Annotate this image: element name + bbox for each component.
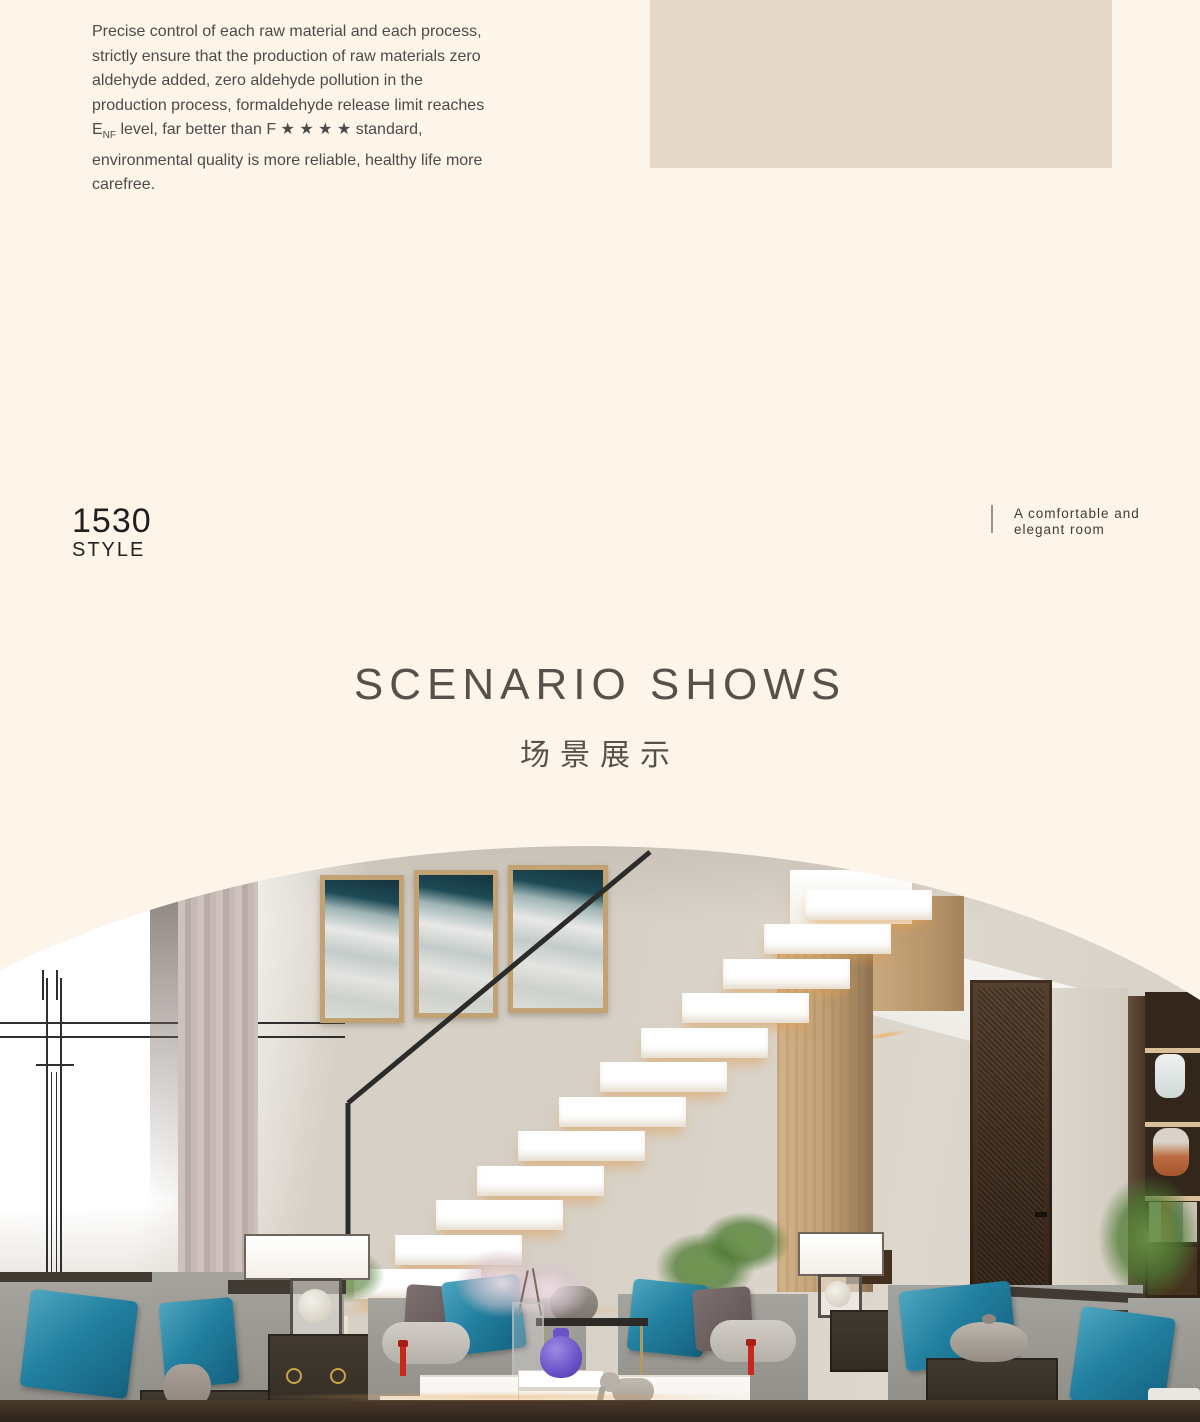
table-lamp-left-shade [244, 1234, 370, 1280]
fern-plant-center [700, 1212, 790, 1272]
intro-text-end: level, far better than F ★ ★ ★ ★ standar… [92, 121, 482, 193]
style-label: STYLE [72, 539, 152, 561]
brass-ring-handle [330, 1368, 346, 1384]
brass-ring-handle [286, 1368, 302, 1384]
floor-light-glow [250, 1392, 750, 1402]
scenario-subtitle: 场景展示 [0, 730, 1200, 774]
caption-divider-bar [991, 505, 993, 533]
intro-paragraph: Precise control of each raw material and… [92, 20, 490, 198]
style-number: 1530 [72, 503, 152, 539]
caption-line-2: elegant room [1014, 522, 1184, 538]
beige-accent-block [650, 0, 1112, 168]
style-badge: 1530 STYLE [72, 503, 152, 561]
lamp-disc [298, 1289, 332, 1323]
caption-text: A comfortable and elegant room [1014, 506, 1184, 538]
bolster-cushion [382, 1322, 470, 1364]
table-lamp-left-stand [290, 1278, 342, 1340]
scenario-heading: SCENARIO SHOWS 场景展示 [0, 660, 1200, 774]
fern-plant-right [1098, 1175, 1200, 1300]
caption-line-1: A comfortable and [1014, 506, 1184, 522]
intro-subscript-enf: NF [103, 130, 116, 141]
scenario-photo [0, 840, 1200, 1422]
teal-pillow [19, 1289, 138, 1399]
teapot-lid [982, 1314, 996, 1324]
product-detail-page: Precise control of each raw material and… [0, 0, 1200, 1422]
lamp-disc [825, 1281, 851, 1307]
scenario-title: SCENARIO SHOWS [0, 660, 1200, 710]
wood-floor [0, 1400, 1200, 1422]
red-tassel [748, 1345, 754, 1375]
table-lamp-right-shade [798, 1232, 884, 1276]
console-leg [640, 1326, 643, 1374]
red-tassel [400, 1346, 406, 1376]
purple-vase [540, 1336, 582, 1378]
teapot [950, 1322, 1028, 1362]
